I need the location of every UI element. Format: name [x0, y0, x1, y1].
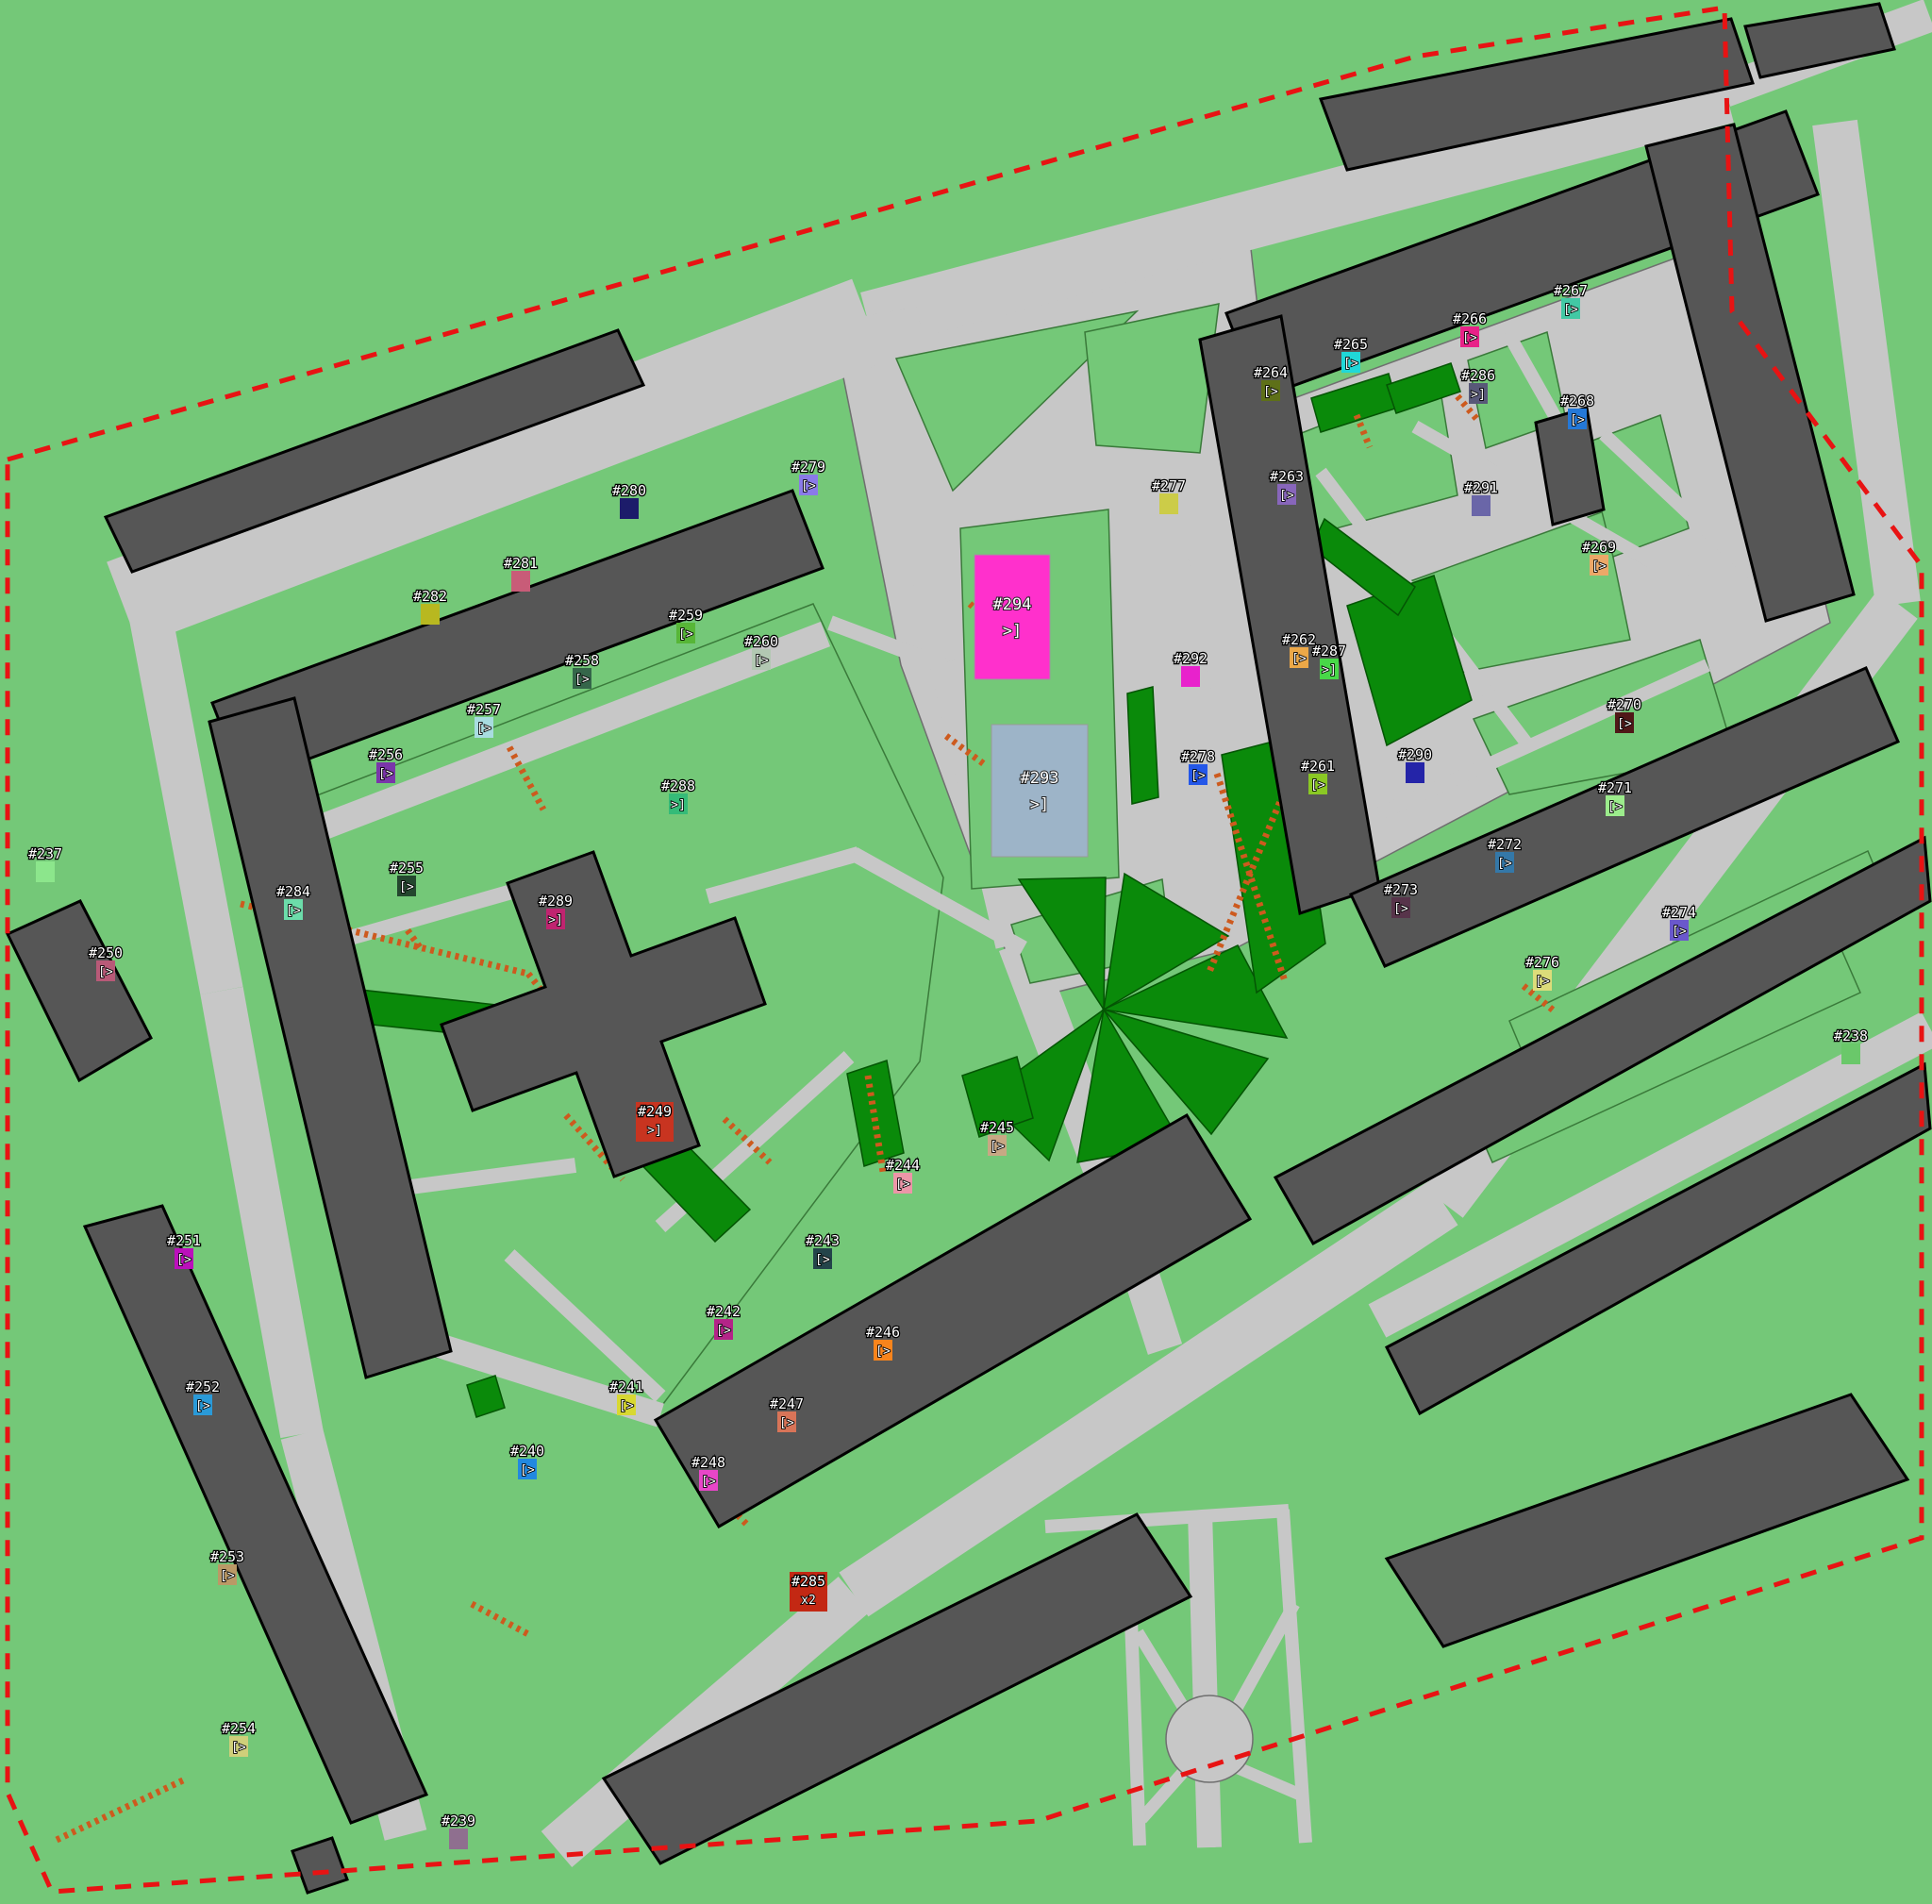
- marker-glyph: [>: [1563, 303, 1578, 317]
- marker-id-label: #245: [980, 1119, 1014, 1136]
- marker-glyph: >]: [671, 798, 686, 812]
- marker-id-label: #242: [707, 1303, 741, 1320]
- map-marker-249[interactable]: #249>]: [636, 1102, 674, 1142]
- zone-id-label: #294: [993, 595, 1032, 614]
- marker-glyph: [>: [801, 479, 816, 493]
- footpath: [1045, 1511, 1289, 1527]
- marker-glyph: [>: [754, 654, 769, 668]
- marker-glyph: [>: [520, 1463, 535, 1478]
- marker-id-label: #271: [1598, 779, 1632, 796]
- marker-id-label: #244: [886, 1157, 920, 1174]
- marker-id-label: #292: [1174, 650, 1207, 667]
- marker-id-label: #252: [186, 1378, 220, 1395]
- marker-id-label: #240: [510, 1443, 544, 1460]
- footpath: [1138, 1632, 1185, 1710]
- marker-glyph: [>: [678, 627, 693, 642]
- zone-rect[interactable]: [974, 555, 1050, 679]
- marker-glyph: [>: [716, 1324, 731, 1338]
- marker-id-label: #259: [669, 607, 703, 624]
- zone-id-label: #293: [1021, 769, 1059, 788]
- marker-box[interactable]: [1159, 493, 1178, 514]
- footpath: [1141, 1768, 1187, 1819]
- zone-glyph-label: >]: [1003, 622, 1022, 641]
- marker-id-label: #258: [565, 652, 599, 669]
- marker-glyph: [>: [779, 1416, 794, 1430]
- marker-id-label: #272: [1488, 836, 1522, 853]
- marker-box[interactable]: [1472, 495, 1491, 516]
- marker-glyph: [>: [231, 1741, 246, 1755]
- marker-id-label: #246: [866, 1324, 900, 1341]
- marker-glyph: [>: [815, 1253, 830, 1267]
- marker-id-label: #251: [167, 1232, 201, 1249]
- marker-box[interactable]: [1406, 762, 1424, 783]
- marker-box[interactable]: [511, 571, 530, 592]
- map-marker-237[interactable]: #237: [28, 845, 62, 882]
- marker-glyph: >]: [1322, 663, 1337, 677]
- map-marker-245[interactable]: #245[>: [980, 1119, 1014, 1156]
- marker-id-label: #279: [791, 459, 825, 476]
- marker-id-label: #247: [770, 1395, 804, 1412]
- marker-id-label: #280: [612, 482, 646, 499]
- marker-id-label: #274: [1662, 904, 1696, 921]
- marker-glyph: [>: [1497, 857, 1512, 871]
- zone-glyph-label: >]: [1030, 795, 1049, 814]
- map-marker-243[interactable]: #243[>: [806, 1232, 840, 1269]
- marker-box[interactable]: [1181, 666, 1200, 687]
- marker-glyph: [>: [1263, 385, 1278, 399]
- marker-glyph: [>: [98, 965, 113, 979]
- marker-id-label: #254: [222, 1720, 256, 1737]
- marker-glyph: >]: [548, 913, 563, 927]
- marker-glyph: [>: [575, 673, 590, 687]
- dirt-track: [472, 1604, 528, 1634]
- marker-glyph: [>: [1607, 800, 1623, 814]
- marker-id-label: #267: [1554, 282, 1588, 299]
- marker-glyph: >]: [1471, 388, 1486, 402]
- marker-glyph: [>: [220, 1569, 235, 1583]
- marker-box[interactable]: [1841, 1044, 1860, 1064]
- marker-glyph: [>: [195, 1399, 210, 1413]
- marker-glyph: [>: [1535, 975, 1550, 989]
- marker-id-label: #286: [1461, 367, 1495, 384]
- map-marker-239[interactable]: #239: [441, 1812, 475, 1849]
- garden-bed: [1127, 687, 1158, 804]
- zone-294[interactable]: #294>]: [974, 555, 1050, 679]
- marker-id-label: #264: [1254, 364, 1288, 381]
- marker-id-label: #256: [369, 746, 403, 763]
- map-marker-258[interactable]: #258[>: [565, 652, 599, 689]
- marker-glyph: [>: [1343, 357, 1358, 371]
- map-canvas[interactable]: #294>]#293>]#237#250[>#251[>#252[>#253[>…: [0, 0, 1932, 1904]
- marker-id-label: #248: [691, 1454, 725, 1471]
- marker-id-label: #237: [28, 845, 62, 862]
- marker-glyph: [>: [1462, 331, 1477, 345]
- marker-id-label: #289: [539, 893, 573, 910]
- marker-glyph: [>: [1279, 489, 1294, 503]
- footpath: [1234, 1766, 1300, 1795]
- marker-id-label: #273: [1384, 881, 1418, 898]
- zone-293[interactable]: #293>]: [991, 725, 1088, 857]
- marker-glyph: [>: [1617, 717, 1632, 731]
- building: [292, 1838, 347, 1893]
- marker-glyph: [>: [990, 1140, 1005, 1154]
- marker-glyph: x2: [801, 1594, 816, 1608]
- building: [1387, 1395, 1907, 1646]
- marker-id-label: #238: [1834, 1027, 1868, 1044]
- marker-id-label: #241: [609, 1378, 643, 1395]
- marker-id-label: #266: [1453, 310, 1487, 327]
- marker-id-label: #281: [504, 555, 538, 572]
- marker-glyph: [>: [1591, 560, 1607, 574]
- marker-glyph: [>: [1191, 769, 1206, 783]
- marker-glyph: [>: [1393, 902, 1408, 916]
- marker-id-label: #285: [791, 1573, 825, 1590]
- marker-id-label: #253: [210, 1548, 244, 1565]
- marker-id-label: #265: [1334, 336, 1368, 353]
- map-marker-285[interactable]: #285x2: [790, 1572, 827, 1612]
- marker-box[interactable]: [449, 1829, 468, 1849]
- building: [8, 901, 151, 1080]
- marker-id-label: #263: [1270, 468, 1304, 485]
- marker-id-label: #269: [1582, 539, 1616, 556]
- marker-glyph: [>: [895, 1177, 910, 1192]
- map-marker-240[interactable]: #240[>: [510, 1443, 544, 1479]
- marker-id-label: #261: [1301, 758, 1335, 775]
- marker-id-label: #270: [1607, 696, 1641, 713]
- marker-glyph: [>: [701, 1475, 716, 1489]
- garden-bed: [467, 1376, 505, 1417]
- marker-id-label: #249: [638, 1103, 672, 1120]
- marker-glyph: [>: [286, 904, 301, 918]
- marker-id-label: #262: [1282, 631, 1316, 648]
- marker-box[interactable]: [36, 861, 55, 882]
- marker-id-label: #277: [1152, 477, 1186, 494]
- zone-rect[interactable]: [991, 725, 1088, 857]
- marker-id-label: #284: [276, 883, 310, 900]
- map-marker-259[interactable]: #259[>: [669, 607, 703, 643]
- marker-glyph: [>: [619, 1399, 634, 1413]
- marker-glyph: [>: [476, 722, 491, 736]
- map-marker-276[interactable]: #276[>: [1525, 954, 1559, 991]
- marker-id-label: #276: [1525, 954, 1559, 971]
- marker-id-label: #239: [441, 1812, 475, 1829]
- roundabout-plaza: [1166, 1695, 1253, 1782]
- marker-id-label: #287: [1312, 643, 1346, 660]
- marker-glyph: >]: [647, 1124, 662, 1138]
- footpath: [1236, 1604, 1294, 1710]
- marker-glyph: [>: [378, 767, 393, 781]
- marker-glyph: [>: [1310, 778, 1325, 793]
- marker-id-label: #268: [1560, 392, 1594, 409]
- marker-id-label: #243: [806, 1232, 840, 1249]
- marker-glyph: [>: [176, 1253, 192, 1267]
- map-viewport: #294>]#293>]#237#250[>#251[>#252[>#253[>…: [0, 0, 1932, 1904]
- marker-id-label: #260: [744, 633, 778, 650]
- marker-id-label: #282: [413, 588, 447, 605]
- marker-id-label: #288: [661, 777, 695, 794]
- road: [151, 618, 222, 991]
- road: [1835, 123, 1898, 604]
- marker-glyph: [>: [399, 880, 414, 894]
- marker-id-label: #250: [89, 944, 123, 961]
- marker-id-label: #290: [1398, 746, 1432, 763]
- marker-glyph: [>: [1291, 652, 1307, 666]
- map-marker-280[interactable]: #280: [612, 482, 646, 519]
- dirt-track: [57, 1779, 185, 1840]
- marker-box[interactable]: [620, 498, 639, 519]
- marker-id-label: #255: [390, 860, 424, 877]
- marker-id-label: #278: [1181, 748, 1215, 765]
- marker-glyph: [>: [1672, 925, 1687, 939]
- map-marker-279[interactable]: #279[>: [791, 459, 825, 495]
- marker-box[interactable]: [421, 604, 440, 625]
- marker-id-label: #257: [467, 701, 501, 718]
- map-marker-254[interactable]: #254[>: [222, 1720, 256, 1757]
- marker-id-label: #291: [1464, 479, 1498, 496]
- marker-glyph: [>: [1570, 413, 1585, 427]
- map-marker-244[interactable]: #244[>: [886, 1157, 920, 1194]
- marker-glyph: [>: [875, 1344, 891, 1359]
